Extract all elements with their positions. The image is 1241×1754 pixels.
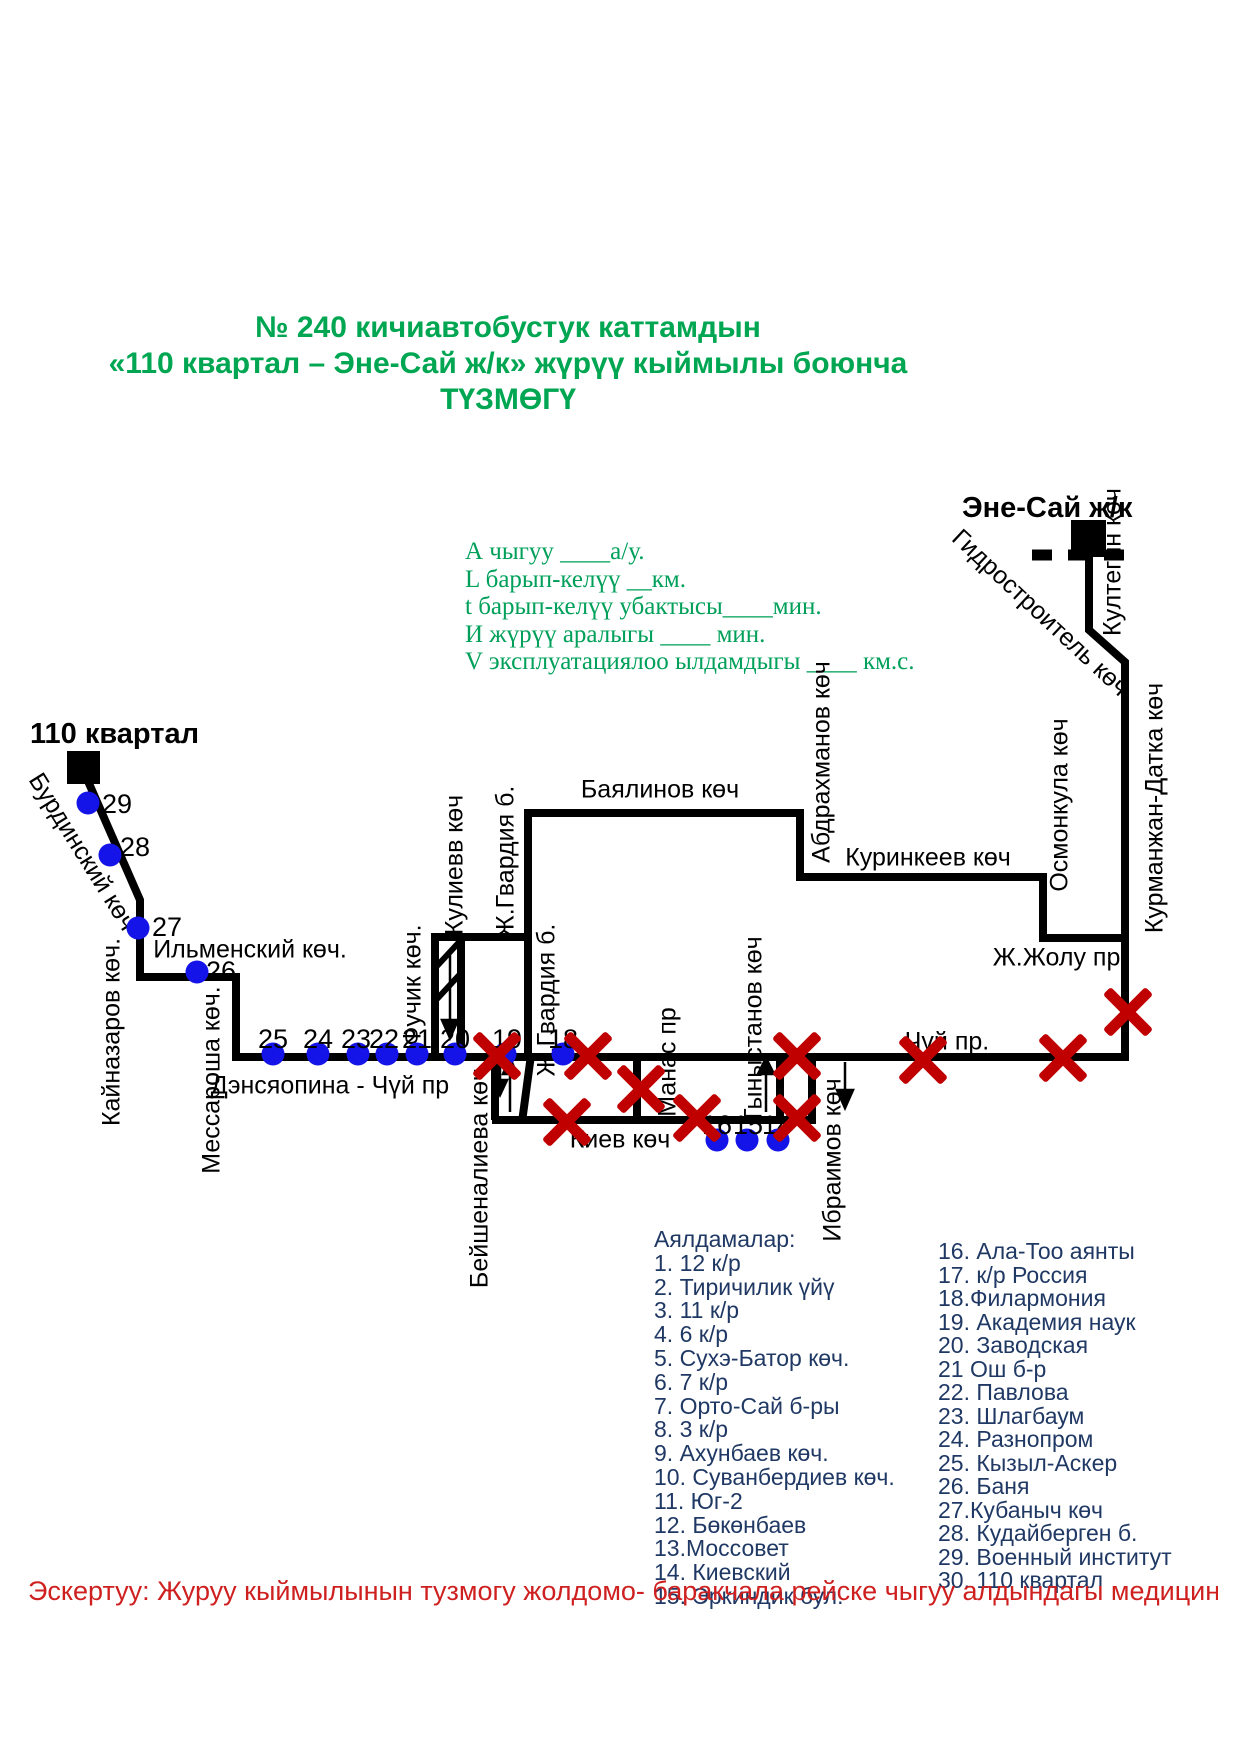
spec-line: L барып-келүү __км. [465,566,915,594]
spec-line: А чыгуу ____а/у. [465,538,915,566]
stop-list-item: 19. Академия наук [938,1311,1172,1335]
stop-number-20: 20 [440,1024,470,1055]
closed-crossing-x-icon [1100,984,1156,1040]
stop-number-28: 28 [120,832,150,863]
bottom-note: Эскертуу: Журуу кыймылынын тузмогу жолдо… [28,1576,1218,1609]
street-label-zh-zholu: Ж.Жолу пр. [993,944,1128,973]
stop-list-item: 17. к/р Россия [938,1264,1172,1288]
stop-list-item: 13.Моссовет [654,1537,895,1561]
closed-crossing-x-icon [469,1028,525,1084]
street-label-ilmensky: Ильменский көч. [153,936,347,965]
stop-number-29: 29 [102,789,132,820]
stop-list-item: 1. 12 к/р [654,1252,895,1276]
stop-number-15: 15 [733,1110,763,1141]
closed-crossing-x-icon [769,1028,825,1084]
stop-list-item: 26. Баня [938,1475,1172,1499]
stop-list-item: 28. Кудайберген б. [938,1522,1172,1546]
stop-list-item: 2. Тиричилик үйү [654,1276,895,1300]
street-label-kurmanzhan-datka: Курманжан-Датка көч [1141,683,1170,933]
stop-list-column-2: 16. Ала-Тоо аянты17. к/р Россия18.Филарм… [938,1240,1172,1593]
stop-number-22: 22 [369,1024,399,1055]
stop-list-item: 3. 11 к/р [654,1299,895,1323]
stop-list-item: 5. Сухэ-Батор көч. [654,1347,895,1371]
stop-list-item: 22. Павлова [938,1381,1172,1405]
stop-list-item: 7. Орто-Сай б-ры [654,1395,895,1419]
stop-list-item: 18.Филармония [938,1287,1172,1311]
street-label-kuliev: Кулиевв көч [441,795,470,935]
street-label-kaynazarov: Кайназаров көч. [98,938,127,1126]
stop-list-item: 8. 3 к/р [654,1418,895,1442]
route-spec-block: А чыгуу ____а/у.L барып-келүү __км.t бар… [465,538,915,676]
spec-line: V эксплуатациялоо ылдамдыгы ____ км.с. [465,648,915,676]
stop-list-item: 21 Ош б-р [938,1358,1172,1382]
closed-crossing-x-icon [1035,1030,1091,1086]
closed-crossing-x-icon [539,1094,595,1150]
stop-list-item: 24. Разнопром [938,1428,1172,1452]
stop-number-24: 24 [303,1024,333,1055]
stop-number-25: 25 [258,1024,288,1055]
title-line3: ТҮЗМӨГҮ [108,382,908,418]
stop-list-item: 25. Кызыл-Аскер [938,1452,1172,1476]
stop-number-21: 21 [402,1024,432,1055]
stop-list-item: 20. Заводская [938,1334,1172,1358]
stop-number-26: 26 [206,956,236,987]
title-line1: № 240 кичиавтобустук каттамдын [108,310,908,346]
street-label-abdrakhmanov: Абдрахманов көч [808,661,837,863]
stop-list-item: 9. Ахунбаев көч. [654,1442,895,1466]
route-diagram-page: № 240 кичиавтобустук каттамдын «110 квар… [0,0,1241,1754]
spec-line: t барып-келүү убактысы____мин. [465,593,915,621]
stop-list-item: 27.Кубаныч көч [938,1499,1172,1523]
closed-crossing-x-icon [560,1028,616,1084]
street-label-beyshenalieva: Бейшеналиева көч [466,1068,495,1288]
street-label-tynystanov: Тыныстанов көч [740,936,769,1123]
closed-crossing-x-icon [669,1090,725,1146]
closed-crossing-x-icon [895,1032,951,1088]
stop-dot-27 [127,917,150,940]
closed-crossing-x-icon [613,1061,669,1117]
stop-list-item: 6. 7 к/р [654,1371,895,1395]
terminal-110kvartal-square [67,751,100,784]
stop-list-item: 29. Военный институт [938,1546,1172,1570]
street-label-bayalinov: Баялинов көч [581,776,739,805]
stop-dot-28 [99,844,122,867]
stop-list-item: 4. 6 к/р [654,1323,895,1347]
closed-crossing-x-icon [769,1090,825,1146]
spec-line: И жүрүү аралыгы ____ мин. [465,621,915,649]
street-label-kultegin: Култегин көч [1099,488,1128,636]
stop-list-item: 23. Шлагбаум [938,1405,1172,1429]
terminal-110kvartal-label: 110 квартал [30,718,199,751]
stop-list-column-1: Аялдамалар: 1. 12 к/р2. Тиричилик үйү3. … [654,1228,895,1609]
street-label-densyaopina-chuy: Дэнсяопина - Чүй пр [211,1072,449,1101]
street-label-kurinkeev: Куринкеев көч [845,844,1011,873]
stop-number-23: 23 [341,1024,371,1055]
page-title: № 240 кичиавтобустук каттамдын «110 квар… [108,310,908,418]
stop-dot-29 [77,792,100,815]
stop-list-item: 12. Бөкөнбаев [654,1514,895,1538]
stop-list-header: Аялдамалар: [654,1228,895,1252]
title-line2: «110 квартал – Эне-Сай ж/к» жүрүү кыймыл… [108,346,908,382]
stop-number-27: 27 [152,912,182,943]
street-label-zh-gvardia-upper: Ж.Гвардия б. [492,786,521,939]
street-label-osmonkula: Осмонкула көч [1046,718,1075,891]
stop-list-item: 16. Ала-Тоо аянты [938,1240,1172,1264]
stop-list-item: 10. Суванбердиев көч. [654,1466,895,1490]
stop-list-item: 11. Юг-2 [654,1490,895,1514]
